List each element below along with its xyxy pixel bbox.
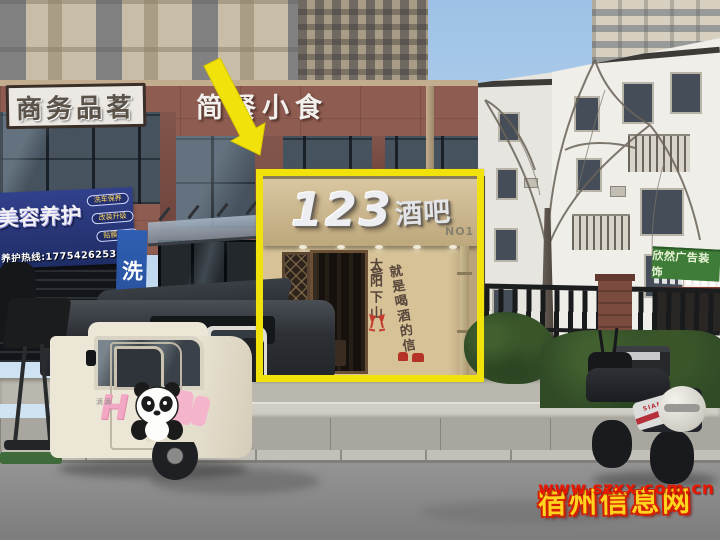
window	[494, 228, 518, 262]
tea-house-sign-text: 商务品茗	[16, 86, 137, 125]
balcony	[572, 214, 630, 250]
watermark-site-url: www.szxx.com.cn	[538, 479, 715, 499]
apartment-tower-middle	[298, 0, 428, 90]
scooter-front-wheel	[650, 430, 694, 484]
tea-house-sign: 商务品茗	[6, 83, 147, 129]
car-beauty-sign: 美容养护 洗车保养 改装升级 贴膜改色 养护热线:17754262535	[0, 187, 136, 269]
trike-marking-text: 滴滴	[96, 397, 112, 407]
scooter-rear-wheel	[592, 420, 632, 468]
ad-shop-sign: 欣然广告装饰	[651, 246, 720, 282]
highlight-rectangle	[256, 169, 484, 382]
service-bubble: 洗车保养	[86, 192, 129, 206]
window	[670, 72, 702, 114]
downspout-pipe	[426, 86, 434, 178]
trike-mirror	[86, 350, 96, 366]
ac-unit	[524, 178, 538, 188]
car-beauty-sign-title: 美容养护	[0, 199, 90, 233]
trike-decal-letter: H	[100, 388, 128, 428]
service-bubble: 改装升级	[91, 210, 134, 224]
window	[576, 158, 602, 192]
street-photo: 商务品茗 简餐小食 美容养护 洗车保养 改装升级 贴膜改色 养护热线:17754…	[0, 0, 720, 540]
ac-unit	[610, 186, 626, 197]
panda-decal	[128, 380, 188, 442]
window	[498, 112, 520, 142]
window	[496, 168, 518, 200]
window	[622, 82, 654, 124]
window	[574, 96, 600, 132]
bay-window	[640, 188, 684, 236]
ad-shop-sign-text: 欣然广告装饰	[651, 247, 720, 283]
fence-pillar-cap	[595, 274, 635, 281]
helmet-visor	[664, 404, 700, 412]
highlight-arrow	[195, 50, 305, 165]
balcony	[628, 134, 690, 172]
